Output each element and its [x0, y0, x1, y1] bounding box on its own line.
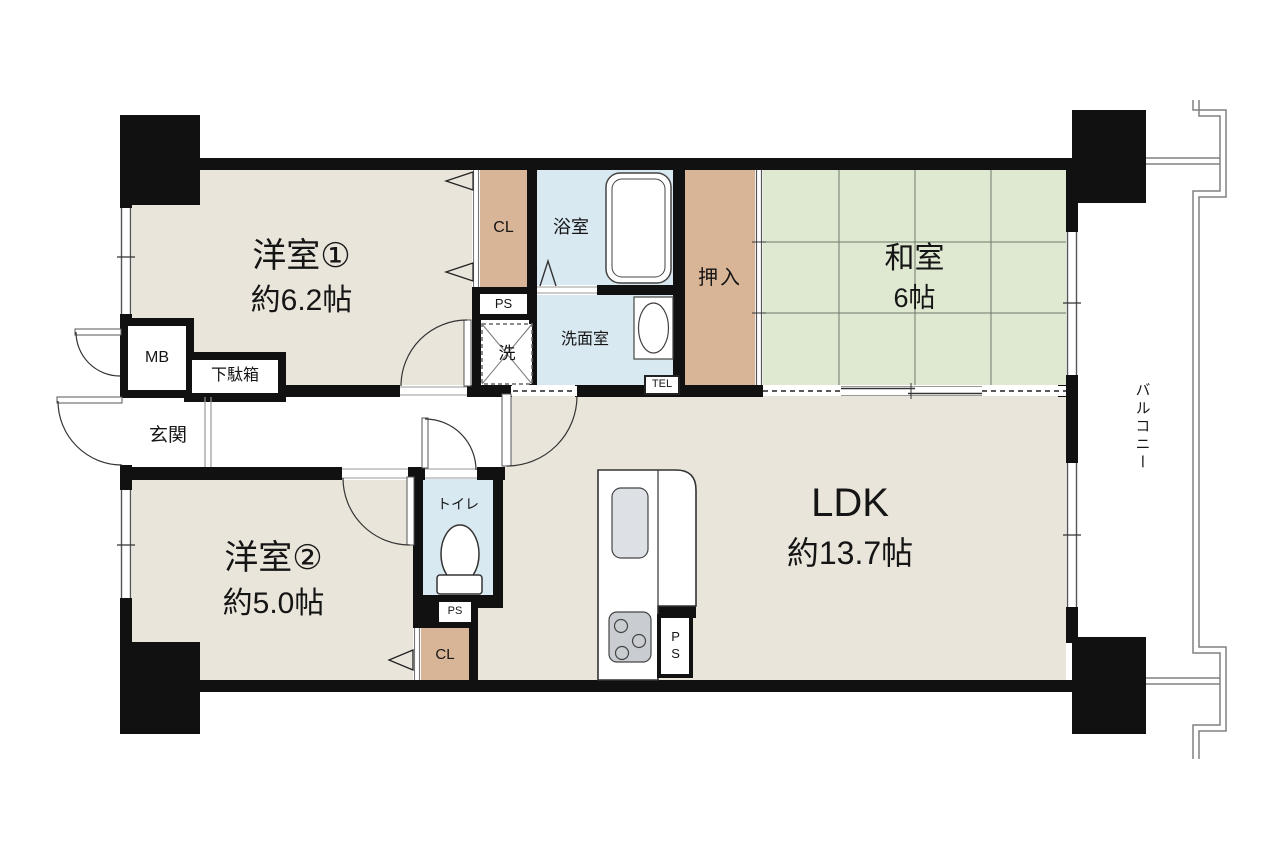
room-size: 6帖 — [893, 280, 935, 318]
room-label-toilet: トイレ — [423, 492, 493, 518]
room-size: 約5.0帖 — [223, 583, 325, 625]
room-label-oshiire: 押入 — [685, 255, 755, 301]
fixture-label-mb: MB — [128, 326, 186, 390]
door-leaf-genkan — [57, 397, 122, 403]
door-leaf-mb — [75, 329, 121, 335]
fixture-label-tel: TEL — [645, 375, 679, 394]
door-leaf-ldk — [502, 394, 511, 466]
pillar-top-right — [1072, 110, 1146, 203]
fixture-label-ps-kitchen: PS — [659, 618, 691, 674]
room-label-genkan: 玄関 — [130, 408, 206, 464]
fixture-label-cl-upper: CL — [480, 196, 527, 260]
room-label-bath: 浴室 — [535, 196, 607, 260]
fixture-label-cl-lower: CL — [421, 636, 469, 672]
room-name: LDK — [811, 475, 889, 531]
opening-senmen — [511, 386, 577, 396]
fixture-label-ps-toilet: PS — [439, 602, 471, 622]
room-label-senmenshitsu: 洗面室 — [537, 318, 633, 362]
opening-toilet-door — [425, 468, 477, 479]
floorplan: 洋室① 約6.2帖 洋室② 約5.0帖 和室 6帖 LDK 約13.7帖 浴室 … — [0, 0, 1280, 850]
room-name: 洋室② — [224, 535, 322, 583]
room-ldk-floor-west — [477, 608, 503, 680]
door-arc-mb — [76, 332, 120, 376]
fixture-label-washer: 洗 — [482, 324, 532, 384]
door-arc-toilet — [425, 419, 476, 470]
opening-yoshitsu2-door — [342, 468, 408, 479]
door-arc-genkan — [58, 401, 122, 465]
washbasin-icon — [634, 297, 673, 359]
room-label-washitsu: 和室 6帖 — [763, 195, 1066, 360]
fixture-label-getabako: 下駄箱 — [192, 360, 278, 393]
balcony-rail-outer — [1193, 100, 1226, 759]
opening-yoshitsu1-door — [400, 386, 467, 396]
bathtub-icon — [606, 173, 671, 283]
pillar-bottom-right — [1072, 637, 1146, 734]
fixture-label-ps-upper: PS — [480, 294, 527, 314]
room-label-balcony: バルコニー — [1126, 368, 1158, 486]
room-size: 約13.7帖 — [787, 531, 913, 576]
opening-bath-door — [537, 286, 597, 294]
room-label-yoshitsu2: 洋室② 約5.0帖 — [132, 495, 415, 665]
room-name: 洋室① — [252, 233, 350, 281]
room-label-ldk: LDK 約13.7帖 — [640, 460, 1060, 590]
room-size: 約6.2帖 — [251, 280, 353, 322]
balcony-rail-inner — [1193, 100, 1220, 759]
stove-icon — [609, 612, 651, 662]
room-name: 和室 — [885, 238, 945, 280]
balcony-layer — [1146, 100, 1226, 759]
door-leaf-toilet — [422, 418, 428, 468]
